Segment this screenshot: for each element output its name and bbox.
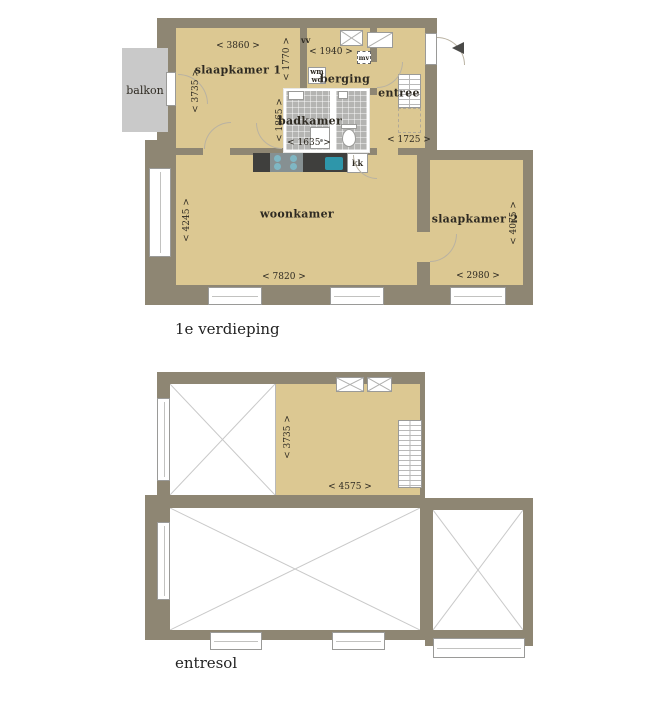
- basin-fixture-box: [367, 32, 393, 48]
- dim-woonkamer-width: < 7820 >: [262, 272, 306, 282]
- skylight-1: [336, 377, 364, 392]
- burner-icon: [274, 163, 281, 170]
- void-room-divider-line: [275, 384, 276, 495]
- balcony-door: [166, 72, 176, 106]
- void-right: [433, 510, 523, 630]
- cooktop: [270, 153, 303, 172]
- void-cross-icon: [170, 384, 275, 495]
- window-entresol-right-bottom: [433, 638, 525, 658]
- burner-icon: [290, 155, 297, 162]
- floor1-title: 1e verdieping: [175, 320, 280, 338]
- void-top-left: [170, 384, 275, 495]
- door-gap-slaapkamer1: [203, 148, 230, 155]
- burner-icon: [274, 155, 281, 162]
- front-door-opening: [425, 33, 437, 65]
- dim-berging-width: < 1940 >: [309, 47, 353, 57]
- void-cross-icon: [433, 510, 523, 630]
- wc-sink: [338, 91, 348, 99]
- window-entresol-left-1: [157, 398, 170, 481]
- fixture-diagonal-icon: [368, 33, 392, 47]
- balcony-label: balkon: [126, 84, 164, 97]
- window-entresol-left-2: [157, 522, 170, 600]
- dim-badkamer-height: < 1865 >: [275, 98, 285, 142]
- window-entresol-bottom-1: [210, 632, 262, 650]
- balcony: balkon: [122, 48, 168, 132]
- door-gap-entree-woonkamer: [377, 148, 398, 155]
- dim-entresol-room-height: < 3735 >: [283, 415, 293, 459]
- window-woonkamer-bottom-1: [208, 287, 262, 305]
- door-gap-slaapkamer2: [417, 232, 430, 262]
- slaapkamer2-label: slaapkamer 2: [432, 213, 519, 226]
- woonkamer-label: woonkamer: [260, 208, 334, 221]
- dim-entree-width: < 1725 >: [387, 135, 431, 145]
- stairs-entresol: [398, 420, 422, 488]
- dim-slaapkamer2-height: < 4075 >: [509, 201, 519, 245]
- window-entresol-bottom-2: [332, 632, 385, 650]
- dim-entresol-room-width: < 4575 >: [328, 482, 372, 492]
- skylight-2: [367, 377, 392, 392]
- slaapkamer1-label: slaapkamer 1: [195, 64, 282, 77]
- dim-slaapkamer2-width: < 2980 >: [456, 271, 500, 281]
- dim-badkamer-width: < 1635 >: [287, 138, 331, 148]
- dim-slaapkamer1-height: < 1770 >: [282, 37, 292, 81]
- skylight-cross-icon: [337, 378, 363, 391]
- void-bottom: [170, 508, 420, 630]
- door-gap-berging: [370, 62, 377, 88]
- skylight-cross-icon: [368, 378, 391, 391]
- berging-label: berging: [320, 73, 370, 86]
- window-slaapkamer2-bottom: [450, 287, 506, 305]
- dim-balkon-door: < 3735 >: [191, 69, 201, 113]
- entrance-arrow-icon: [452, 42, 464, 54]
- window-woonkamer-left: [149, 168, 171, 257]
- mechanical-vent-label: mv: [359, 54, 370, 62]
- roof-window-box: [340, 30, 363, 46]
- dim-slaapkamer1-width: < 3860 >: [216, 41, 260, 51]
- floor2-title: entresol: [175, 654, 237, 672]
- void-cross-icon: [170, 508, 420, 630]
- toilet-bowl: [342, 129, 356, 147]
- badkamer-label: badkamer: [278, 115, 342, 128]
- dim-woonkamer-height: < 4245 >: [182, 198, 192, 242]
- kitchen-sink: [325, 157, 343, 170]
- bathroom-sink: [288, 91, 304, 100]
- cross-icon: [341, 31, 362, 45]
- stairs-dashed-continuation: [398, 108, 421, 133]
- mechanical-vent-box: mv: [357, 51, 371, 64]
- burner-icon: [290, 163, 297, 170]
- floorplan-canvas: balkon: [0, 0, 666, 720]
- entree-label: entree: [378, 87, 420, 100]
- window-woonkamer-bottom-2: [330, 287, 384, 305]
- vv-label: vv: [301, 35, 310, 45]
